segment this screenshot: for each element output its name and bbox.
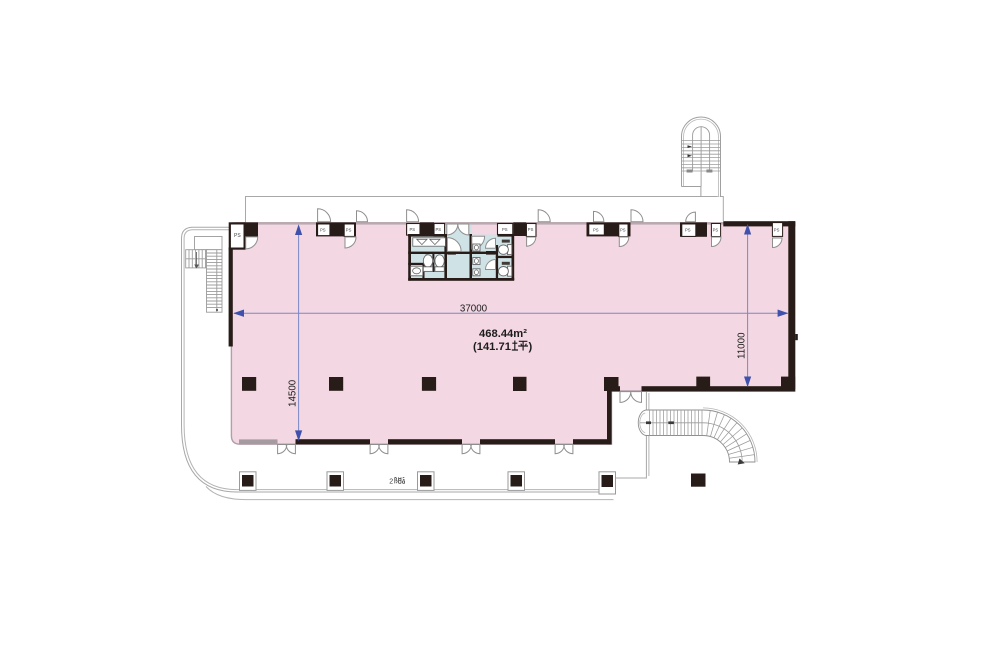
svg-text:PS: PS — [410, 227, 416, 232]
svg-text:37000: 37000 — [460, 303, 488, 314]
svg-text:PS: PS — [620, 228, 626, 233]
svg-text:PS: PS — [685, 228, 691, 233]
svg-text:PS: PS — [713, 228, 719, 233]
svg-text:PS: PS — [593, 228, 599, 233]
svg-text:PS: PS — [502, 227, 508, 232]
svg-text:PS: PS — [234, 233, 241, 239]
svg-text:PS: PS — [528, 227, 534, 232]
svg-text:PS: PS — [774, 228, 780, 233]
svg-text:(141.71: (141.71 — [473, 341, 511, 353]
svg-text:): ) — [529, 341, 533, 353]
svg-text:11000: 11000 — [737, 332, 748, 359]
svg-text:PS: PS — [436, 227, 442, 232]
svg-text:468.44m²: 468.44m² — [479, 328, 527, 340]
svg-text:PS: PS — [346, 228, 352, 233]
svg-text:2: 2 — [389, 478, 393, 485]
svg-text:PS: PS — [320, 228, 326, 233]
svg-text:14500: 14500 — [288, 379, 299, 407]
